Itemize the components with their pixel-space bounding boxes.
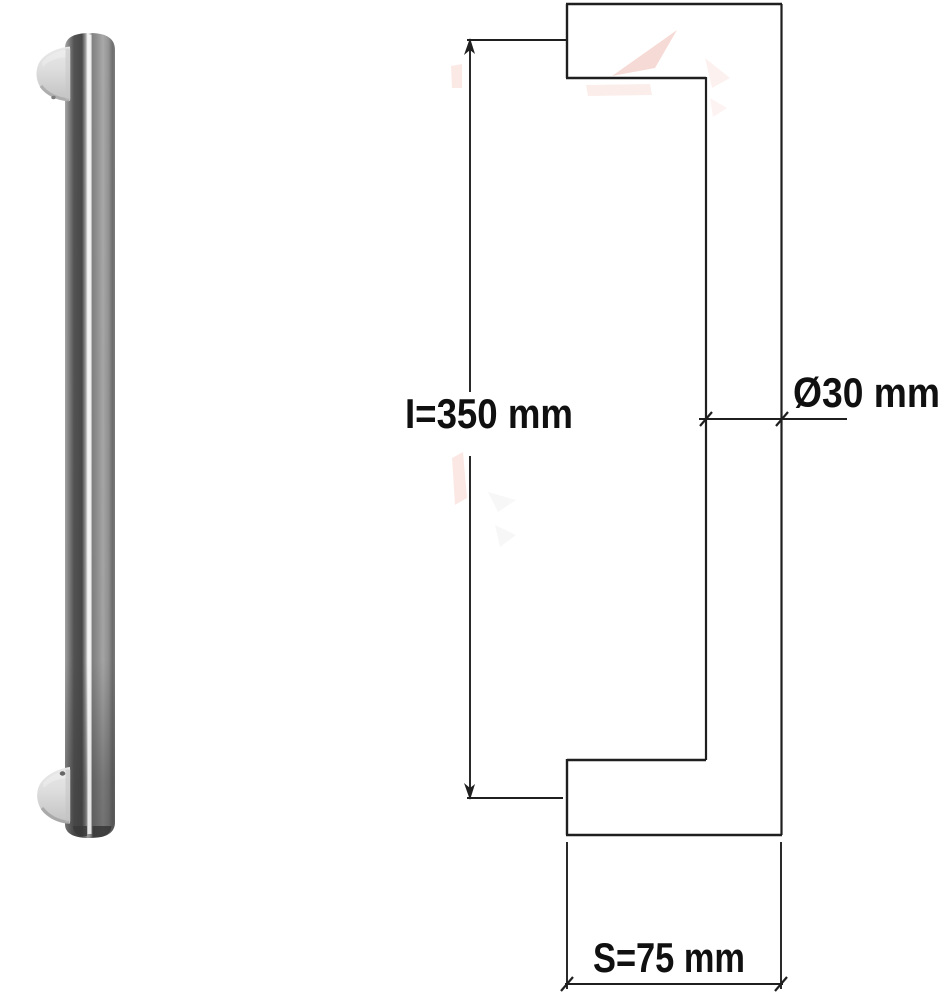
svg-text:I=350 mm: I=350 mm [405,390,573,437]
svg-text:Ø30 mm: Ø30 mm [793,369,940,416]
svg-text:S=75 mm: S=75 mm [593,934,745,981]
